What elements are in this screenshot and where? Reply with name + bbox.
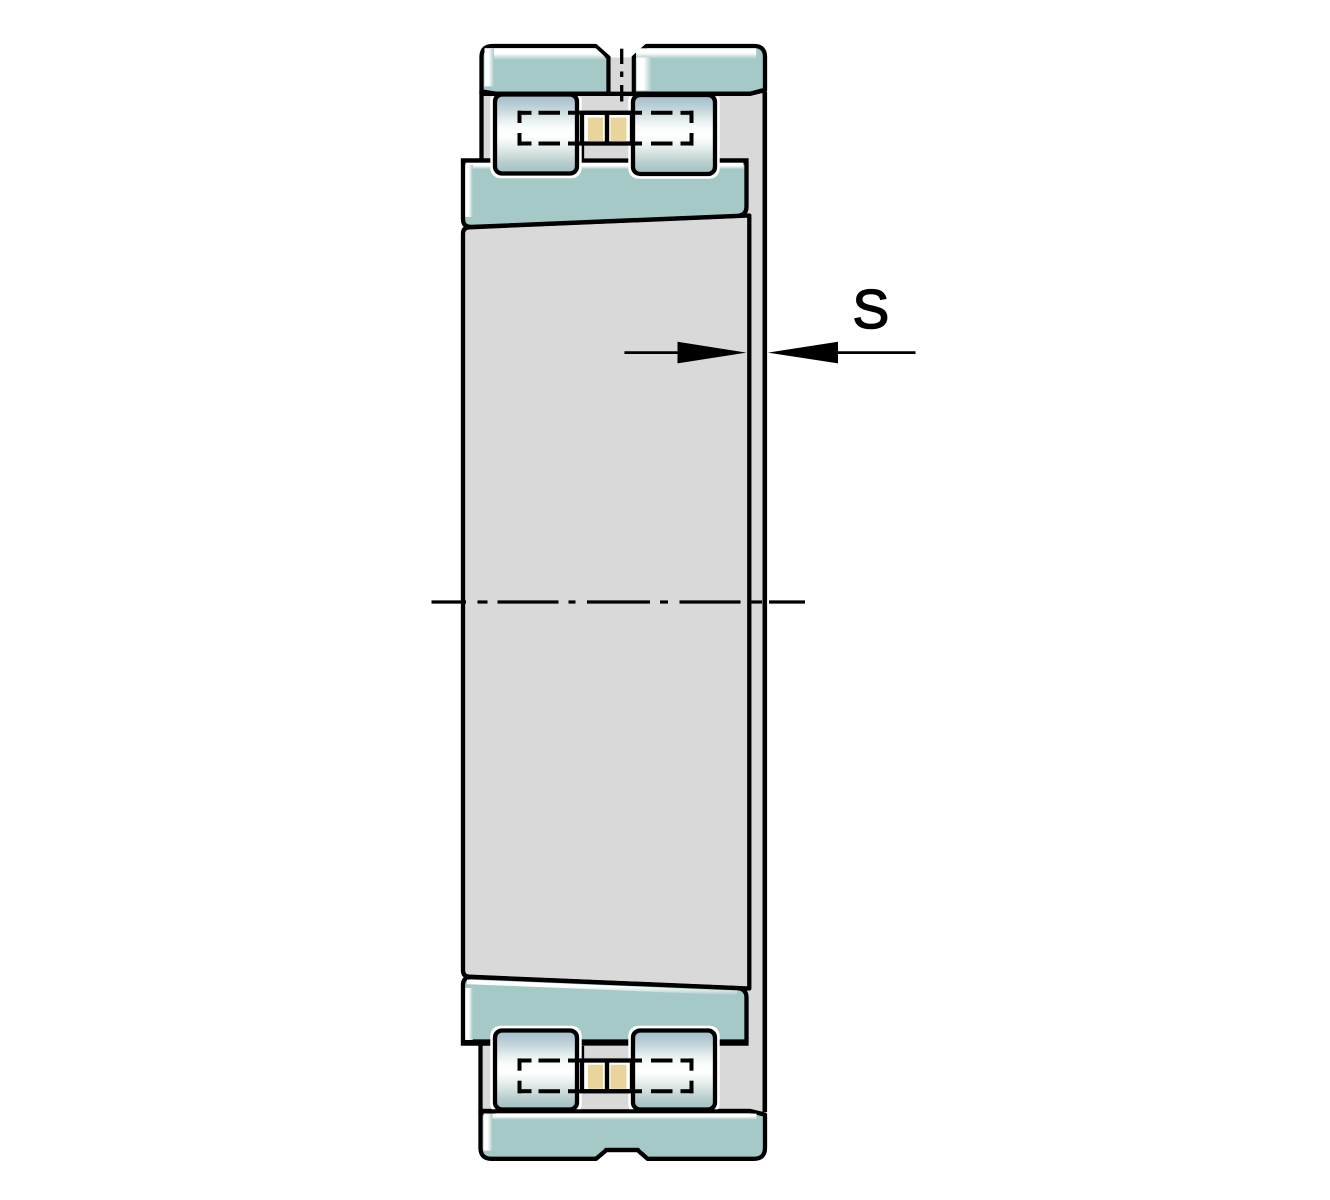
svg-text:S: S [853, 278, 890, 340]
